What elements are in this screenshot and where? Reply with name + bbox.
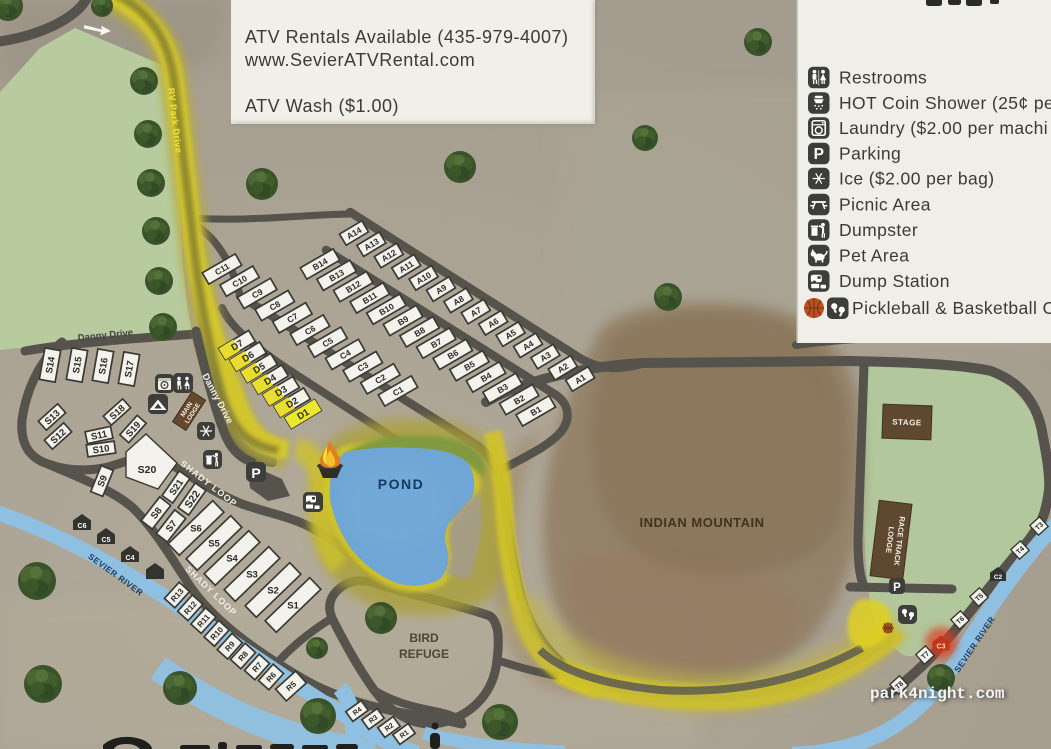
svg-text:S4: S4 xyxy=(226,553,238,564)
svg-text:HOT Coin Shower (25¢ pe: HOT Coin Shower (25¢ pe xyxy=(839,93,1051,113)
svg-text:Dump Station: Dump Station xyxy=(839,271,950,291)
svg-text:S3: S3 xyxy=(246,569,258,580)
svg-text:S2: S2 xyxy=(267,585,279,596)
svg-text:S5: S5 xyxy=(208,538,220,549)
svg-text:park4night.com: park4night.com xyxy=(870,685,1005,703)
svg-text:C6: C6 xyxy=(78,523,87,530)
svg-text:STAGE: STAGE xyxy=(892,417,922,427)
svg-text:Ice ($2.00 per bag): Ice ($2.00 per bag) xyxy=(839,168,994,188)
svg-text:C4: C4 xyxy=(126,555,135,562)
svg-text:S20: S20 xyxy=(138,464,157,476)
svg-text:Restrooms: Restrooms xyxy=(839,67,927,87)
svg-text:POND: POND xyxy=(378,476,424,492)
svg-text:S10: S10 xyxy=(92,443,110,456)
svg-text:INDIAN MOUNTAIN: INDIAN MOUNTAIN xyxy=(640,515,765,530)
svg-text:S1: S1 xyxy=(287,600,299,611)
svg-text:P: P xyxy=(251,465,260,481)
svg-text:C5: C5 xyxy=(102,537,111,544)
svg-text:C2: C2 xyxy=(994,574,1003,581)
svg-text:P: P xyxy=(814,146,824,163)
svg-text:Pickleball & Basketball C: Pickleball & Basketball C xyxy=(852,298,1051,318)
svg-text:ATV Wash ($1.00): ATV Wash ($1.00) xyxy=(245,96,399,116)
svg-text:Picnic Area: Picnic Area xyxy=(839,194,931,214)
svg-text:C3: C3 xyxy=(937,644,946,651)
svg-text:P: P xyxy=(893,582,901,594)
svg-text:ATV Rentals Available (435-979: ATV Rentals Available (435-979-4007) xyxy=(245,27,569,47)
svg-text:Pet Area: Pet Area xyxy=(839,245,909,265)
svg-text:BIRD: BIRD xyxy=(409,631,439,645)
svg-text:Laundry ($2.00 per machi: Laundry ($2.00 per machi xyxy=(839,118,1048,138)
svg-text:S6: S6 xyxy=(190,523,202,534)
svg-text:REFUGE: REFUGE xyxy=(399,647,449,661)
svg-text:www.SevierATVRental.com: www.SevierATVRental.com xyxy=(244,50,475,70)
svg-text:Dumpster: Dumpster xyxy=(839,220,918,240)
svg-text:Parking: Parking xyxy=(839,143,901,163)
